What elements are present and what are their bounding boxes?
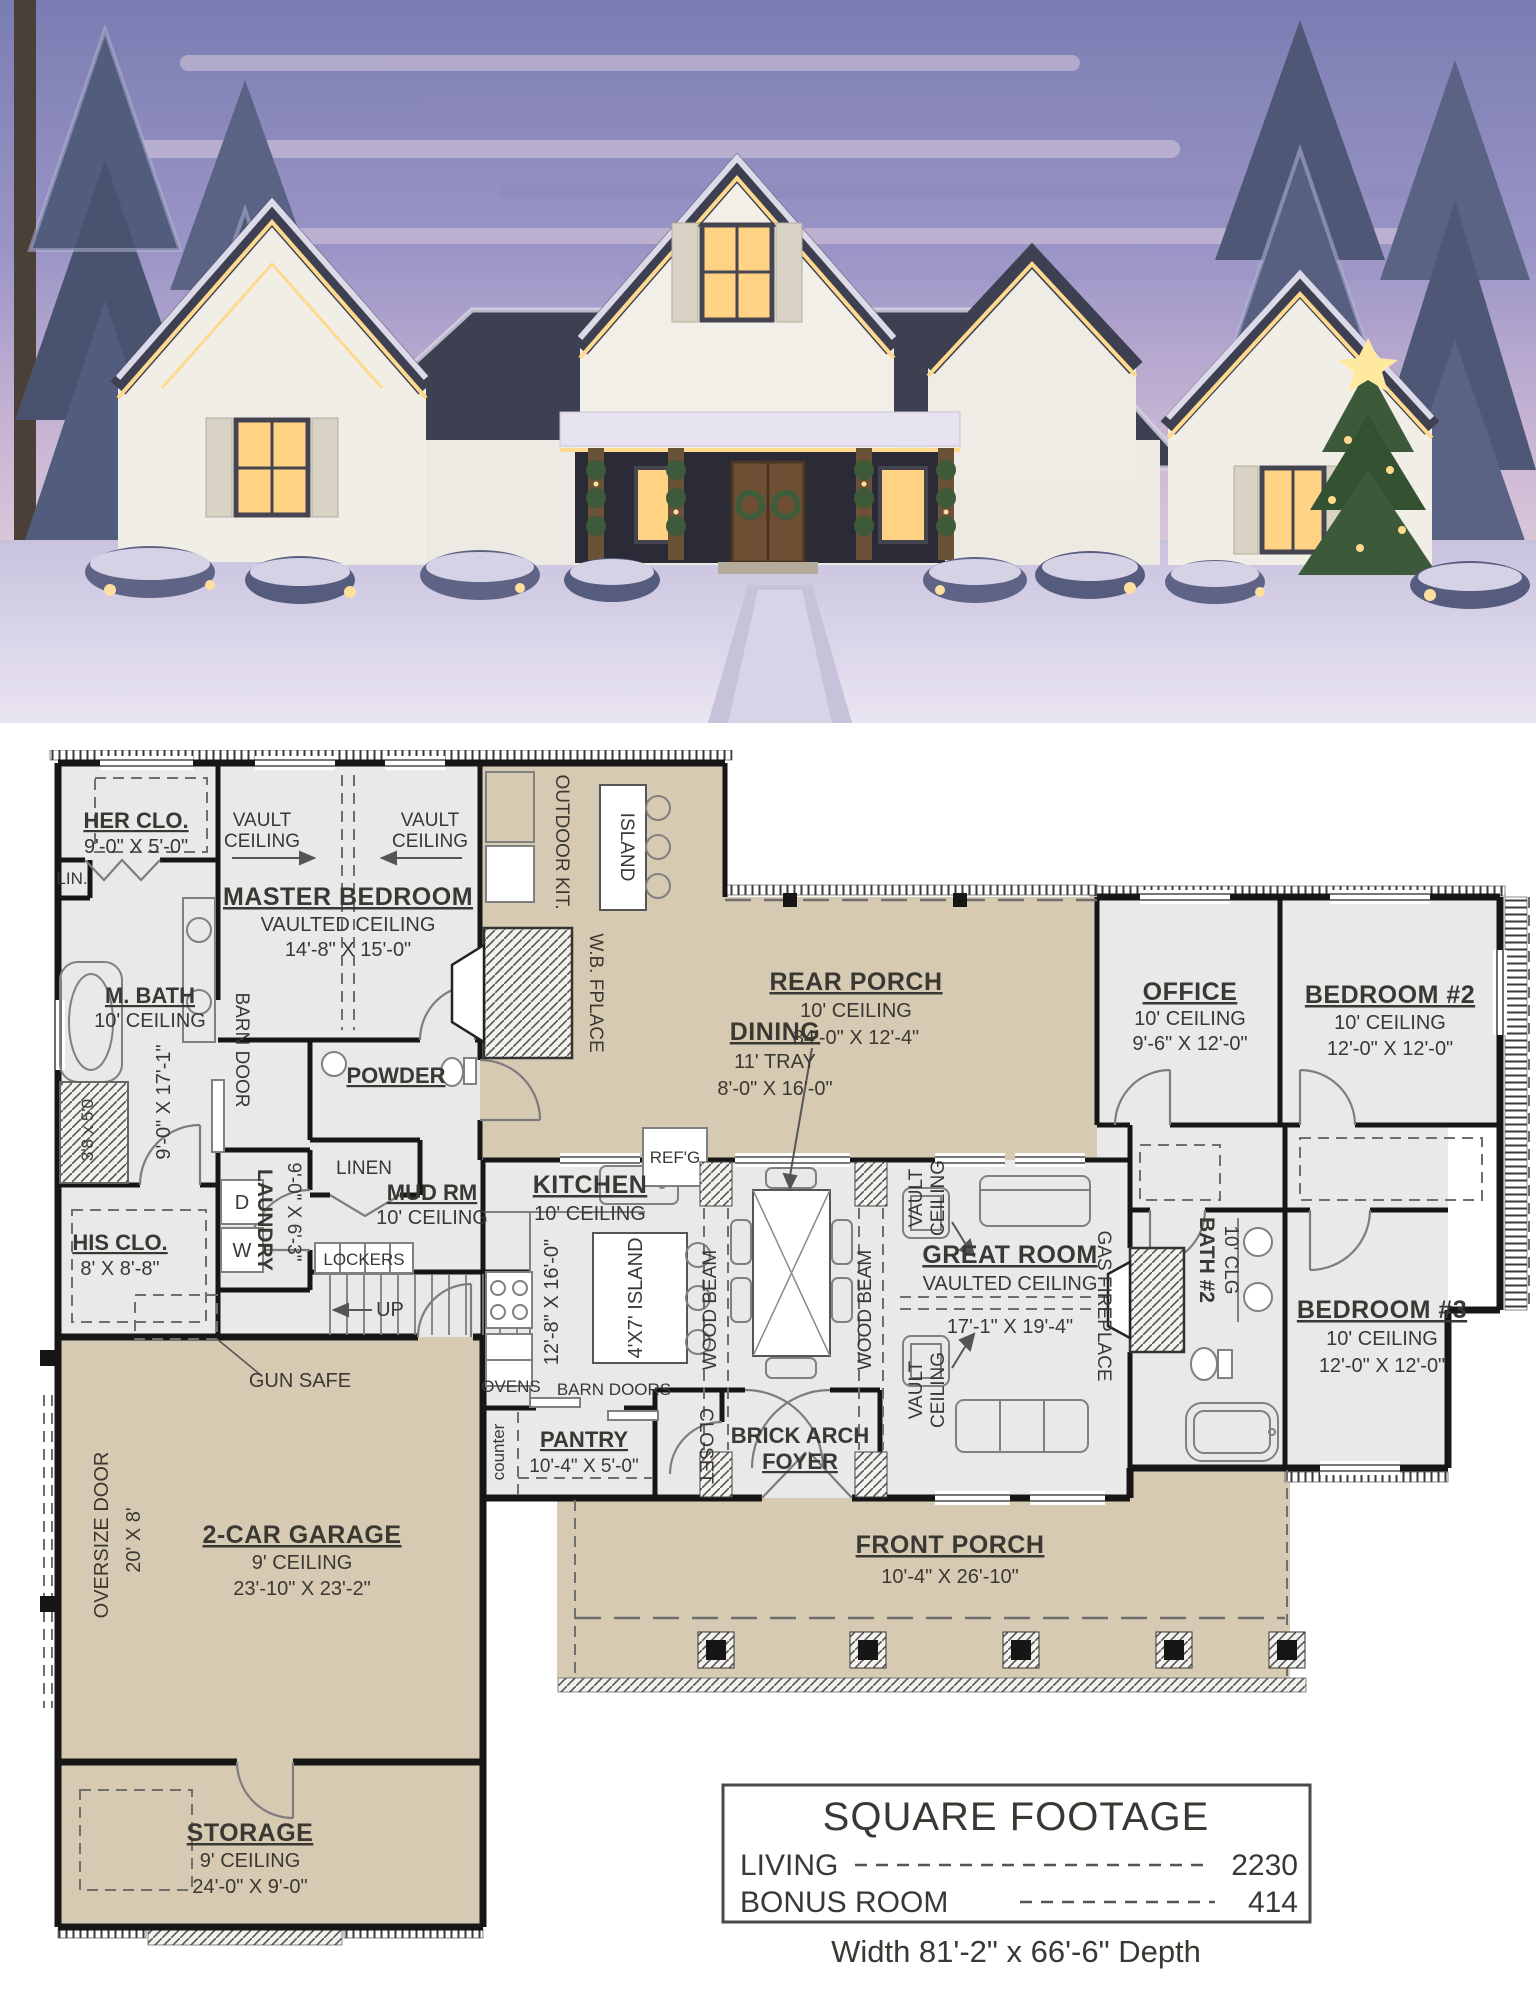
floor-plan: HER CLO. 9'-0" X 5'-0" LIN. M. BATH 10' … <box>0 750 1536 1989</box>
svg-text:24'-0" X 9'-0": 24'-0" X 9'-0" <box>192 1876 307 1898</box>
bedroom2-label: BEDROOM #2 <box>1305 981 1475 1009</box>
washer-label: W <box>233 1240 252 1262</box>
svg-text:9'-0" X 6'-3": 9'-0" X 6'-3" <box>283 1163 304 1262</box>
svg-text:12'-0" X 12'-0": 12'-0" X 12'-0" <box>1319 1355 1445 1377</box>
his-closet-label: HIS CLO. <box>72 1230 167 1255</box>
svg-text:10' CEILING: 10' CEILING <box>1326 1328 1438 1350</box>
living-label: LIVING <box>740 1849 838 1882</box>
overall-dimensions: Width 81'-2" x 66'-6" Depth <box>831 1934 1201 1969</box>
svg-text:10' CLG: 10' CLG <box>1220 1225 1241 1294</box>
vault-ceiling-label: VAULT <box>906 1360 927 1419</box>
square-footage-title: SQUARE FOOTAGE <box>823 1795 1210 1839</box>
laundry-label: LAUNDRY <box>253 1169 276 1271</box>
storage-label: STORAGE <box>187 1819 314 1847</box>
svg-text:11' TRAY: 11' TRAY <box>734 1051 816 1073</box>
gas-fireplace-label: GAS FIREPLACE <box>1093 1231 1114 1382</box>
bedroom3-label: BEDROOM #3 <box>1297 1296 1467 1324</box>
svg-text:VAULTED CEILING: VAULTED CEILING <box>923 1273 1098 1295</box>
svg-text:8'-0" X 16'-0": 8'-0" X 16'-0" <box>717 1078 832 1100</box>
vault-ceiling-label: VAULT <box>233 810 292 831</box>
svg-text:OVERSIZE DOOR: OVERSIZE DOOR <box>91 1452 113 1619</box>
kitchen-island-label: 4'X7' ISLAND <box>625 1237 647 1358</box>
front-porch-label: FRONT PORCH <box>856 1531 1045 1559</box>
master-bedroom-label: MASTER BEDROOM <box>223 883 473 911</box>
svg-text:23'-10" X 23'-2": 23'-10" X 23'-2" <box>233 1578 370 1600</box>
svg-text:10'-4" X 26'-10": 10'-4" X 26'-10" <box>881 1566 1018 1588</box>
wood-beam-label: WOOD BEAM <box>700 1250 721 1370</box>
bath2-label: BATH #2 <box>1195 1217 1218 1303</box>
svg-text:9'-0" X 5'-0": 9'-0" X 5'-0" <box>84 836 188 858</box>
svg-text:9' CEILING: 9' CEILING <box>200 1850 301 1872</box>
svg-text:10' CEILING: 10' CEILING <box>376 1207 488 1229</box>
rear-porch-label: REAR PORCH <box>769 968 942 996</box>
rear-porch-post <box>953 893 967 907</box>
front-doors <box>718 462 818 574</box>
gun-safe-label: GUN SAFE <box>249 1370 351 1392</box>
svg-text:10' CEILING: 10' CEILING <box>94 1010 206 1032</box>
garage-floor <box>58 1337 483 1762</box>
svg-text:9'-0" X 17'-1": 9'-0" X 17'-1" <box>153 1044 175 1159</box>
shower-label: 3'8 x 5'0 <box>78 1099 97 1161</box>
rear-porch-post <box>783 893 797 907</box>
svg-text:10'-4" X 5'-0": 10'-4" X 5'-0" <box>529 1456 638 1477</box>
ovens-label: OVENS <box>481 1377 541 1396</box>
svg-text:12'-8" X 16'-0": 12'-8" X 16'-0" <box>541 1239 563 1365</box>
range <box>486 1272 532 1328</box>
wb-fireplace-label: W.B. FPLACE <box>585 933 606 1052</box>
porch-roof <box>560 412 960 446</box>
svg-text:CEILING: CEILING <box>224 831 300 852</box>
svg-text:10' CEILING: 10' CEILING <box>1334 1012 1446 1034</box>
lockers-label: LOCKERS <box>323 1250 404 1269</box>
powder-label: POWDER <box>347 1063 446 1088</box>
bonus-room-value: 414 <box>1248 1886 1298 1919</box>
refrigerator-label: REF'G <box>650 1148 700 1167</box>
powder-sink <box>322 1052 346 1076</box>
garage-label: 2-CAR GARAGE <box>202 1521 401 1549</box>
counter-label: counter <box>489 1423 508 1480</box>
bath2-toilet <box>1191 1348 1217 1380</box>
svg-text:CEILING: CEILING <box>928 1352 949 1428</box>
center-gable-window <box>672 223 802 322</box>
great-room-label: GREAT ROOM <box>922 1241 1097 1269</box>
svg-text:VAULTED CEILING: VAULTED CEILING <box>261 914 436 936</box>
master-bath-label: M. BATH <box>105 983 195 1008</box>
garage-door-label: 20' X 8' <box>123 1507 145 1572</box>
dryer-label: D <box>235 1192 249 1214</box>
dining-label: DINING <box>730 1018 821 1046</box>
left-wing-window <box>206 418 338 517</box>
svg-text:10' CEILING: 10' CEILING <box>534 1203 646 1225</box>
wood-beam-label: WOOD BEAM <box>855 1250 876 1370</box>
vault-ceiling-label: VAULT <box>401 810 460 831</box>
gas-fireplace <box>1130 1248 1184 1352</box>
foyer-closet-label: CLOSET <box>695 1408 716 1484</box>
vault-ceiling-label: VAULT <box>906 1168 927 1227</box>
svg-text:10' CEILING: 10' CEILING <box>1134 1008 1246 1030</box>
svg-text:CEILING: CEILING <box>392 831 468 852</box>
kitchen-label: KITCHEN <box>533 1171 648 1199</box>
bath2-sink <box>1244 1283 1272 1311</box>
svg-text:CEILING: CEILING <box>928 1160 949 1236</box>
mud-room-label: MUD RM <box>387 1180 477 1205</box>
square-footage-box: SQUARE FOOTAGE LIVING 2230 BONUS ROOM 41… <box>723 1785 1310 1969</box>
svg-text:14'-8" X 15'-0": 14'-8" X 15'-0" <box>285 939 411 961</box>
rear-island-label: ISLAND <box>616 813 637 882</box>
barn-doors-label: BARN DOORS <box>557 1380 671 1399</box>
bonus-room-label: BONUS ROOM <box>740 1886 948 1919</box>
wb-fireplace <box>484 928 572 1058</box>
linen1-label: LIN. <box>56 869 87 888</box>
svg-text:FOYER: FOYER <box>762 1449 838 1474</box>
linen2-label: LINEN <box>336 1158 392 1179</box>
outdoor-kitchen-label: OUTDOOR KIT. <box>551 774 572 909</box>
bath2-sink <box>1244 1228 1272 1256</box>
pantry-label: PANTRY <box>540 1427 628 1452</box>
living-value: 2230 <box>1231 1849 1298 1882</box>
svg-text:17'-1" X 19'-4": 17'-1" X 19'-4" <box>947 1316 1073 1338</box>
svg-text:12'-0" X 12'-0": 12'-0" X 12'-0" <box>1327 1038 1453 1060</box>
svg-text:8' X 8'-8": 8' X 8'-8" <box>80 1258 159 1280</box>
svg-text:9'-6" X 12'-0": 9'-6" X 12'-0" <box>1132 1033 1247 1055</box>
house-photo <box>0 0 1536 750</box>
office-label: OFFICE <box>1143 978 1238 1006</box>
svg-text:9' CEILING: 9' CEILING <box>252 1552 353 1574</box>
her-closet-label: HER CLO. <box>83 808 188 833</box>
up-label: UP <box>376 1299 404 1321</box>
foyer-label: BRICK ARCH <box>731 1423 870 1448</box>
barn-door-label: BARN DOOR <box>231 992 252 1107</box>
